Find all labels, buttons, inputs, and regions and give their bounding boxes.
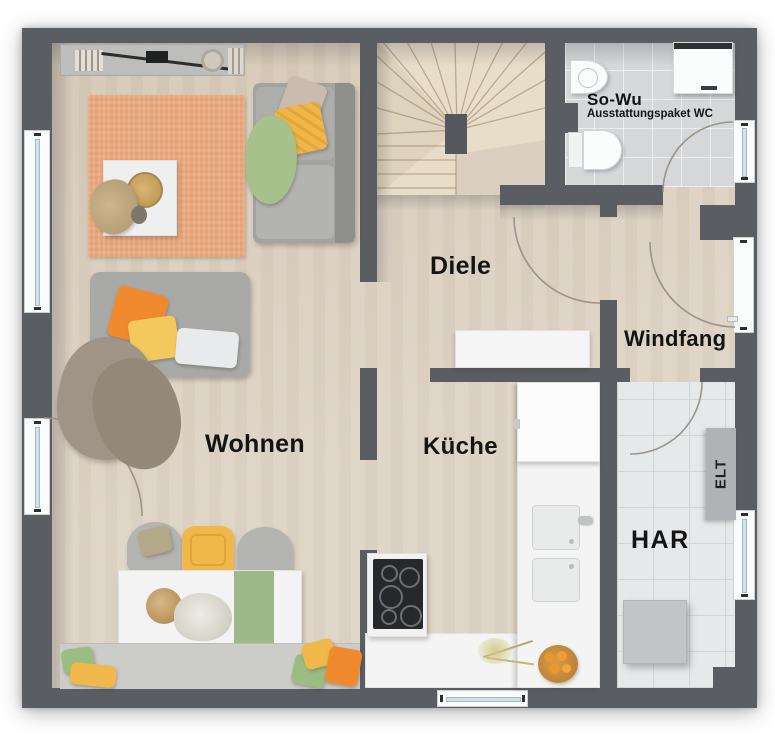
decor-flowers-white — [174, 593, 232, 641]
room-label-diele: Diele — [430, 252, 491, 281]
window-glass — [742, 128, 747, 177]
wall-diele-windfang-upper — [600, 187, 617, 217]
sink-basin-1 — [532, 505, 580, 550]
terrace-door-wohnen — [24, 418, 50, 515]
sideboard-wohnen — [60, 44, 245, 76]
drain — [569, 564, 574, 569]
burner-2 — [399, 567, 420, 588]
wall-corner-step — [713, 667, 735, 688]
wall-diele-kueche — [430, 368, 617, 382]
dining-table — [118, 570, 302, 653]
wall-wohnen-diele-upper — [360, 42, 377, 282]
chair-cushion-beige — [136, 525, 173, 558]
fruit — [544, 652, 554, 662]
media-box — [146, 51, 168, 63]
room-label-har: HAR — [631, 526, 690, 555]
window-har-right — [733, 510, 755, 600]
room-label-kueche: Küche — [423, 433, 498, 461]
burner-3 — [379, 585, 403, 609]
fruit — [562, 664, 571, 673]
vase — [131, 206, 147, 224]
terrace-door-glass — [35, 427, 40, 508]
room-label-wc-subtitle: Ausstattungspaket WC — [587, 108, 713, 120]
wohnen-wall-shadow — [377, 42, 393, 282]
burner-1 — [381, 565, 398, 582]
fruit — [549, 663, 560, 674]
toilet-bowl — [583, 130, 622, 170]
wall-exterior-top — [22, 28, 757, 43]
window-glass — [742, 519, 747, 593]
burner-4 — [381, 609, 397, 625]
wall-stair-wc — [545, 42, 565, 187]
floorplan-page: ELT Wohnen Diele Küche Windfang HAR So-W… — [0, 0, 775, 735]
cooktop — [373, 559, 423, 629]
window-kueche-bottom — [437, 690, 528, 707]
wall-windfang-har-right — [700, 368, 735, 382]
window-wc-right — [733, 120, 755, 183]
washing-machine-controls — [701, 86, 717, 90]
faucet — [578, 516, 592, 524]
bench-pillow-orange-right — [324, 645, 363, 687]
flower-sprig-blossoms — [478, 638, 512, 664]
sideboard-diele — [455, 330, 590, 368]
fruit — [557, 651, 567, 661]
room-label-wohnen: Wohnen — [205, 430, 305, 459]
dining-chair-2 — [237, 527, 293, 575]
window-glass — [35, 139, 40, 306]
deco-plate — [201, 49, 224, 72]
drain — [569, 539, 574, 544]
pillow-white-lounger — [175, 327, 240, 368]
table-runner-green — [234, 571, 274, 654]
window-wohnen-left — [24, 130, 50, 313]
washing-machine — [673, 42, 733, 94]
elt-label: ELT — [713, 459, 730, 489]
room-label-wc-title: So-Wu — [587, 90, 642, 110]
washing-machine-back — [674, 43, 732, 49]
bench-pillow-yellow-left — [69, 662, 117, 689]
wall-kueche-har — [600, 382, 617, 688]
window-glass — [446, 697, 521, 702]
chair-seat-line — [190, 534, 226, 566]
wall-windfang-har-left — [617, 368, 630, 382]
burner-5 — [400, 605, 422, 627]
wall-exterior-bottom — [22, 688, 757, 708]
wall-wc-sink-partition — [565, 103, 578, 133]
dining-chair-yellow — [182, 526, 234, 574]
books-stack-left — [75, 50, 103, 71]
books-stack-right — [228, 48, 243, 74]
entry-door-handle — [727, 316, 738, 322]
entry-door — [733, 237, 754, 333]
fruit-bowl — [538, 645, 578, 683]
toilet-tank — [568, 132, 583, 168]
cabinet-handle — [514, 419, 520, 429]
har-appliance — [623, 600, 687, 664]
wall-wc-south — [500, 185, 663, 205]
stair-newel — [445, 114, 467, 154]
kitchen-tall-cabinet — [517, 382, 600, 462]
wall-wohnen-kueche-mid — [360, 368, 377, 460]
sofa-backrest — [335, 83, 355, 243]
cooktop-island — [367, 553, 427, 637]
room-label-windfang: Windfang — [624, 326, 726, 352]
dining-chair-1 — [127, 522, 183, 572]
sink-basin-2 — [532, 558, 580, 602]
elt-panel: ELT — [706, 428, 736, 520]
wc-wall-shadow — [500, 205, 663, 221]
wall-windfang-pier — [700, 205, 735, 240]
wc-sink-basin — [578, 68, 598, 88]
